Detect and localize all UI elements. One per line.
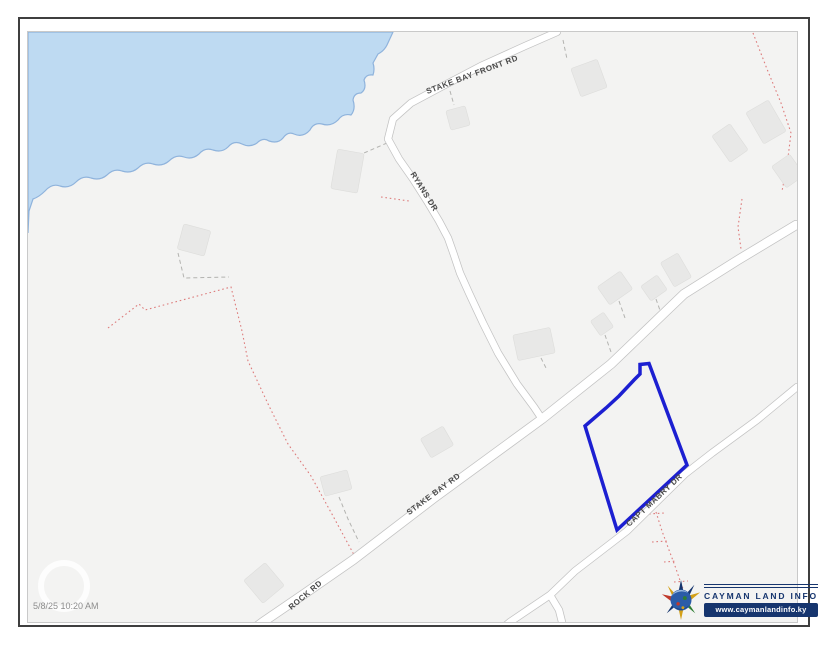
logo-url-link[interactable]: www.caymanlandinfo.ky (704, 603, 818, 617)
map-graphics: STAKE BAY FRONT RD RYANS DR STAKE BAY RD… (28, 32, 797, 622)
map-canvas[interactable]: STAKE BAY FRONT RD RYANS DR STAKE BAY RD… (27, 31, 798, 623)
map-timestamp: 5/8/25 10:20 AM (33, 601, 99, 611)
road-label-rock-rd: ROCK RD (287, 579, 324, 612)
water-sea (28, 32, 393, 233)
road-label-ryans-dr: RYANS DR (408, 170, 439, 213)
logo-title: CAYMAN LAND INFO (704, 591, 818, 601)
logo-divider-rules (704, 584, 818, 588)
globe-star-icon (660, 578, 702, 622)
cayman-land-info-logo[interactable]: CAYMAN LAND INFO www.caymanlandinfo.ky (660, 578, 798, 622)
road-label-stake-bay-front-rd: STAKE BAY FRONT RD (425, 53, 519, 96)
road-label-stake-bay-rd: STAKE BAY RD (405, 471, 462, 517)
highlighted-parcel-outline[interactable] (585, 364, 687, 531)
road-label-capt-mabry-dr: CAPT MABRY DR (624, 472, 684, 528)
